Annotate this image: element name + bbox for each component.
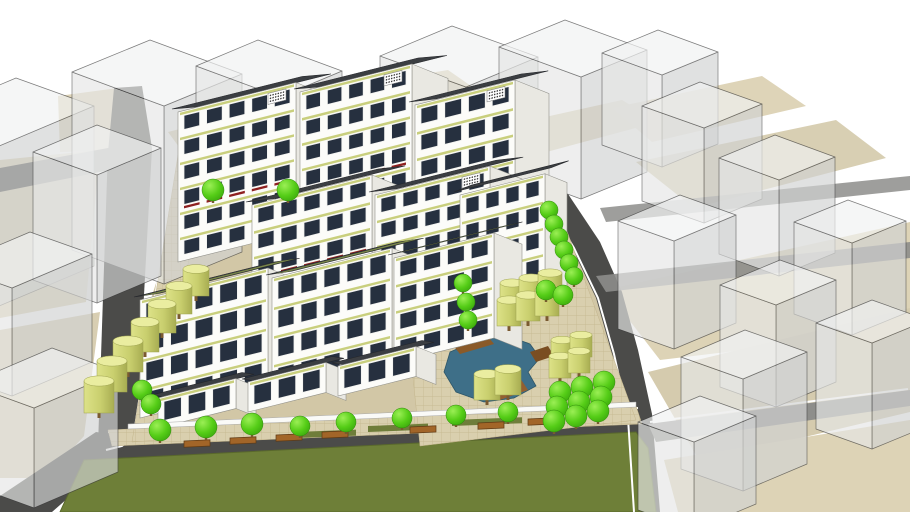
sphere-tree-canopy	[277, 179, 299, 201]
window	[306, 92, 320, 110]
sphere-tree-canopy	[290, 416, 310, 436]
tree-trunk	[486, 400, 489, 405]
tree-trunk	[546, 316, 549, 321]
window	[526, 180, 539, 199]
cylinder-tree-top	[549, 352, 571, 359]
sphere-tree-canopy	[149, 419, 171, 441]
window	[347, 318, 363, 340]
bench	[230, 437, 256, 444]
window	[486, 216, 499, 235]
cylinder-tree-top	[568, 347, 590, 354]
sphere-tree-canopy	[141, 394, 161, 414]
window	[393, 353, 410, 376]
cylinder-tree-top	[570, 331, 592, 338]
tree-trunk	[507, 395, 510, 400]
sphere-tree-canopy	[454, 274, 472, 292]
window	[327, 112, 341, 130]
window	[327, 137, 341, 155]
cylinder-tree	[84, 376, 114, 418]
window	[349, 81, 363, 99]
window	[303, 369, 320, 392]
window	[370, 127, 384, 145]
tree-trunk	[508, 326, 511, 331]
bench	[410, 426, 436, 433]
cylinder-tree-top	[84, 376, 114, 386]
window	[278, 277, 294, 299]
window	[278, 335, 294, 357]
window	[278, 375, 295, 398]
tree-trunk	[527, 321, 530, 326]
window	[392, 146, 406, 164]
window	[220, 281, 238, 304]
cylinder-tree-top	[166, 282, 192, 291]
sphere-tree-canopy	[498, 402, 518, 422]
window	[278, 306, 294, 328]
window	[188, 391, 205, 414]
window	[370, 254, 386, 276]
window	[195, 346, 213, 369]
sphere-tree-canopy	[587, 400, 609, 422]
window	[324, 295, 340, 317]
sphere-tree-canopy	[446, 405, 466, 425]
window	[486, 190, 499, 209]
sphere-tree-canopy	[543, 410, 565, 432]
window	[301, 272, 317, 294]
window	[347, 289, 363, 311]
bench	[478, 422, 504, 429]
window	[327, 87, 341, 105]
sphere-tree-canopy	[565, 267, 583, 285]
cylinder-tree-top	[97, 356, 127, 366]
sphere-tree-canopy	[459, 311, 477, 329]
tree-trunk	[178, 314, 181, 319]
ghost-face-left	[816, 323, 872, 449]
window	[244, 333, 262, 356]
sphere-tree-canopy	[553, 285, 573, 305]
window	[195, 316, 213, 339]
sphere-tree-canopy	[457, 293, 475, 311]
sphere-tree-canopy	[241, 413, 263, 435]
window	[370, 312, 386, 334]
sphere-tree-canopy	[565, 405, 587, 427]
ghost-face-left	[618, 221, 674, 349]
window	[301, 300, 317, 322]
cylinder-tree-top	[551, 336, 573, 343]
window	[466, 195, 479, 214]
tree-trunk	[144, 352, 147, 357]
window	[244, 274, 262, 297]
window	[220, 310, 238, 333]
sphere-tree-canopy	[336, 412, 356, 432]
window	[327, 163, 341, 181]
window	[306, 168, 320, 186]
sphere-tree-canopy	[195, 416, 217, 438]
tree-trunk	[161, 333, 164, 338]
sphere-tree-canopy	[392, 408, 412, 428]
window	[164, 397, 181, 420]
window	[506, 211, 519, 230]
ghost-block	[816, 300, 910, 449]
model-render-viewport	[0, 0, 910, 512]
window	[368, 359, 385, 382]
window	[171, 352, 189, 375]
window	[344, 365, 361, 388]
bench	[184, 440, 210, 447]
window	[220, 340, 238, 363]
window	[392, 121, 406, 139]
ghost-block	[618, 195, 736, 349]
window	[213, 385, 230, 408]
cylinder-tree-top	[538, 269, 562, 277]
window	[526, 206, 539, 225]
window	[324, 323, 340, 345]
window	[370, 101, 384, 119]
sphere-tree-canopy	[202, 179, 224, 201]
cylinder-tree-top	[148, 299, 176, 309]
window	[306, 143, 320, 161]
window	[146, 358, 164, 381]
window	[254, 381, 271, 404]
window	[244, 304, 262, 327]
cylinder-tree-top	[183, 265, 209, 274]
window	[349, 157, 363, 175]
cylinder-tree-top	[495, 365, 521, 374]
cylinder-tree-top	[131, 317, 159, 327]
window	[349, 132, 363, 150]
window	[370, 283, 386, 305]
window	[306, 117, 320, 135]
cylinder-tree	[495, 365, 521, 400]
window	[526, 233, 539, 252]
architectural-3d-scene	[0, 0, 910, 512]
tree-trunk	[98, 413, 101, 418]
window	[301, 329, 317, 351]
window	[392, 96, 406, 114]
window	[370, 152, 384, 170]
window	[506, 185, 519, 204]
window	[349, 107, 363, 125]
window	[324, 266, 340, 288]
window	[347, 260, 363, 282]
tree-trunk	[195, 296, 198, 301]
window	[370, 76, 384, 94]
cylinder-tree-top	[113, 336, 143, 346]
